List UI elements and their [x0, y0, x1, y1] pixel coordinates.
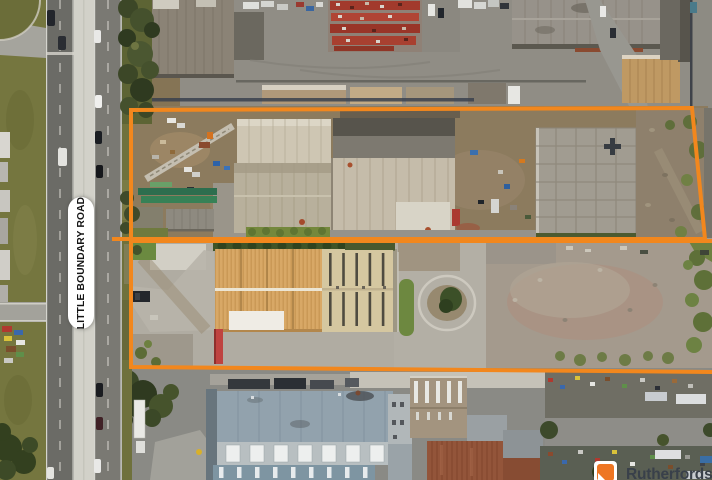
road-label: LITTLE BOUNDARY ROAD	[68, 197, 94, 329]
aerial-photo	[0, 0, 712, 480]
agency-logo-icon	[594, 461, 617, 480]
agency-name: Rutherfords	[626, 467, 712, 480]
agency-logo-glyph	[597, 464, 614, 480]
grid-roof-building	[536, 128, 636, 239]
road-label-text: LITTLE BOUNDARY ROAD	[76, 197, 87, 329]
lower-parcel	[130, 238, 712, 370]
parked-trailer	[134, 400, 145, 438]
aerial-listing-photo: LITTLE BOUNDARY ROAD Rutherfords	[0, 0, 712, 480]
bottom-warehouse	[206, 389, 393, 480]
skylight-building	[410, 376, 467, 438]
wrecking-yard	[328, 0, 422, 52]
upper-parcel	[130, 106, 712, 239]
industrial-surroundings-top	[118, 0, 712, 108]
upper-warehouse	[234, 118, 455, 235]
tan-warehouse	[215, 249, 397, 332]
agency-watermark: Rutherfords	[594, 461, 712, 480]
